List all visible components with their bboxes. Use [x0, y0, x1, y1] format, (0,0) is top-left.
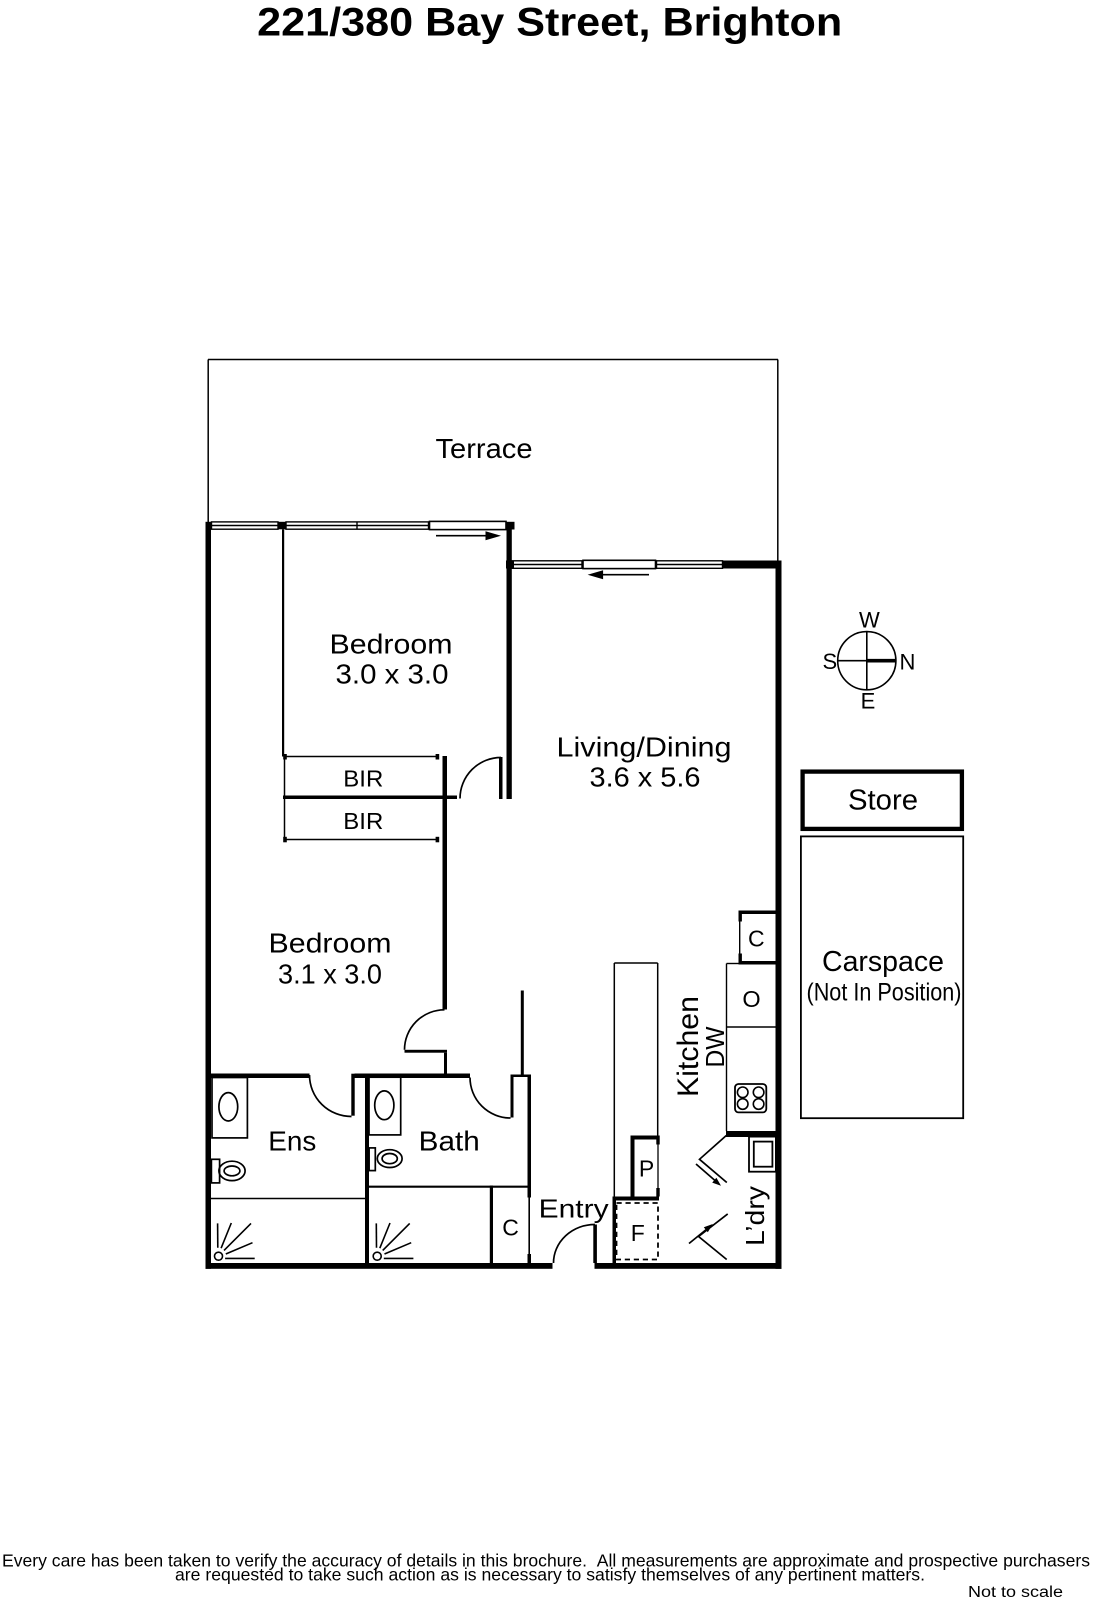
svg-text:Store: Store	[848, 785, 918, 817]
svg-text:3.0 x 3.0: 3.0 x 3.0	[336, 658, 449, 689]
svg-text:3.1 x 3.0: 3.1 x 3.0	[278, 959, 382, 990]
svg-text:Bath: Bath	[419, 1125, 480, 1156]
svg-text:are requested to take such act: are requested to take such action as is …	[175, 1565, 925, 1585]
svg-text:F: F	[631, 1220, 645, 1246]
svg-text:Carspace: Carspace	[822, 946, 944, 978]
svg-text:C: C	[502, 1215, 519, 1241]
svg-text:S: S	[822, 649, 837, 674]
svg-text:P: P	[639, 1155, 654, 1181]
svg-text:(Not In Position): (Not In Position)	[807, 979, 962, 1007]
svg-text:N: N	[899, 650, 915, 675]
svg-text:Bedroom: Bedroom	[330, 628, 453, 659]
svg-text:Not to scale: Not to scale	[968, 1584, 1063, 1600]
svg-text:3.6 x 5.6: 3.6 x 5.6	[590, 762, 701, 793]
svg-text:Entry: Entry	[539, 1194, 609, 1224]
svg-text:W: W	[859, 607, 880, 632]
svg-text:BIR: BIR	[343, 808, 383, 834]
svg-text:Kitchen: Kitchen	[672, 996, 705, 1097]
svg-text:Terrace: Terrace	[436, 433, 533, 464]
svg-text:Living/Dining: Living/Dining	[557, 731, 732, 762]
svg-text:BIR: BIR	[343, 766, 383, 792]
svg-text:Bedroom: Bedroom	[269, 927, 392, 958]
svg-text:221/380 Bay Street, Brighton: 221/380 Bay Street, Brighton	[257, 1, 842, 45]
svg-text:Ens: Ens	[268, 1125, 316, 1156]
svg-text:C: C	[748, 926, 765, 952]
svg-text:L’dry: L’dry	[740, 1186, 770, 1246]
svg-text:O: O	[742, 986, 760, 1012]
svg-text:E: E	[861, 689, 876, 714]
